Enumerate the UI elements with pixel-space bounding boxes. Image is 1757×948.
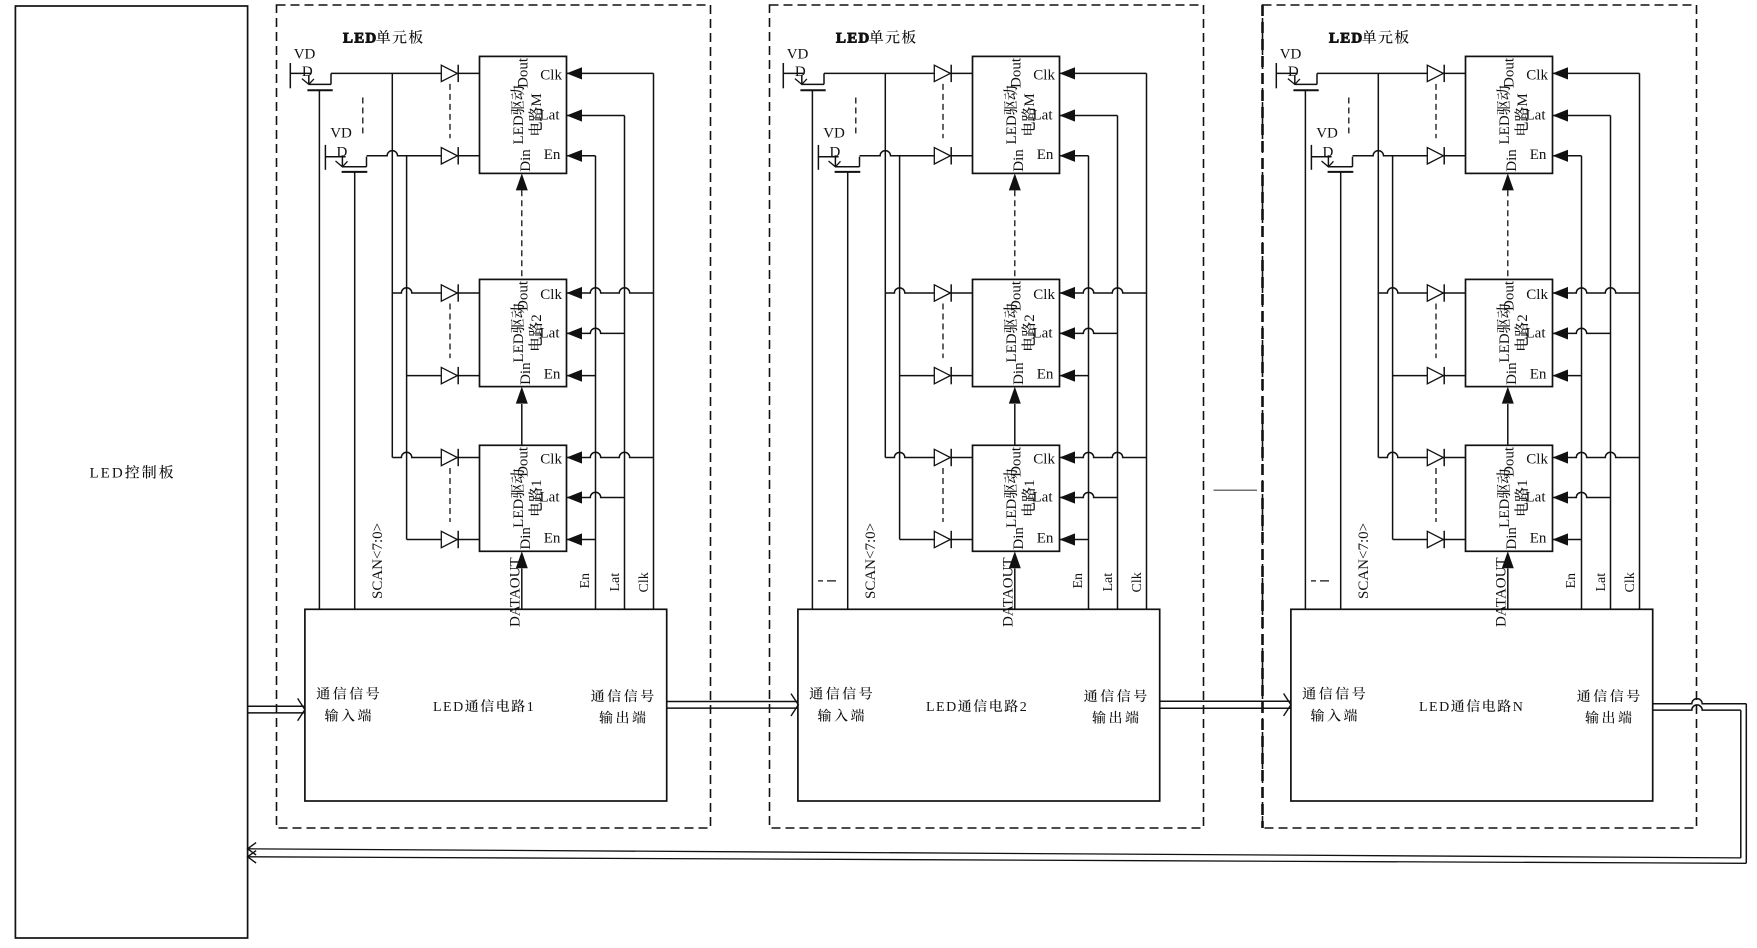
svg-text:Dout: Dout	[1502, 446, 1518, 477]
svg-text:LED: LED	[926, 700, 958, 715]
svg-text:LED: LED	[343, 31, 377, 47]
svg-text:En: En	[1564, 573, 1579, 589]
svg-text:LED: LED	[1004, 115, 1020, 144]
svg-text:Dout: Dout	[1009, 57, 1025, 88]
svg-text:2: 2	[529, 314, 545, 322]
svg-text:Clk: Clk	[1526, 452, 1548, 468]
svg-text:Din: Din	[1011, 149, 1027, 172]
svg-text:Clk: Clk	[1526, 67, 1548, 83]
svg-text:LED: LED	[1497, 333, 1513, 362]
svg-text:Lat: Lat	[1033, 325, 1054, 341]
svg-text:Clk: Clk	[540, 67, 562, 83]
svg-text:Lat: Lat	[1526, 490, 1547, 506]
svg-text:Din: Din	[518, 527, 534, 550]
svg-text:2: 2	[1022, 314, 1038, 322]
svg-text:Din: Din	[1011, 527, 1027, 550]
svg-text:LED: LED	[1497, 115, 1513, 144]
svg-text:LED: LED	[1004, 333, 1020, 362]
svg-text:VD: VD	[330, 126, 352, 142]
svg-text:LED: LED	[511, 499, 527, 528]
svg-text:LED: LED	[1419, 700, 1451, 715]
svg-text:Clk: Clk	[637, 572, 652, 592]
svg-text:Clk: Clk	[1623, 572, 1638, 592]
svg-text:LED: LED	[1497, 499, 1513, 528]
svg-text:DATAOUT: DATAOUT	[1494, 557, 1510, 627]
svg-text:Clk: Clk	[1033, 452, 1055, 468]
svg-text:SCAN<7:0>: SCAN<7:0>	[863, 523, 879, 599]
svg-text:Clk: Clk	[540, 452, 562, 468]
svg-text:D: D	[302, 64, 313, 80]
svg-text:LED: LED	[90, 466, 125, 482]
svg-text:Clk: Clk	[1526, 287, 1548, 303]
svg-text:Lat: Lat	[1033, 108, 1054, 124]
svg-text:En: En	[578, 573, 593, 589]
svg-text:1: 1	[529, 480, 545, 488]
svg-text:Clk: Clk	[1033, 67, 1055, 83]
svg-text:1: 1	[527, 700, 536, 715]
svg-text:M: M	[529, 93, 545, 106]
svg-text:Din: Din	[1011, 362, 1027, 385]
svg-text:LED: LED	[511, 115, 527, 144]
svg-text:Dout: Dout	[1502, 57, 1518, 88]
svg-text:En: En	[1037, 531, 1054, 547]
svg-text:En: En	[544, 531, 561, 547]
svg-text:DATAOUT: DATAOUT	[508, 557, 524, 627]
svg-text:M: M	[1022, 93, 1038, 106]
svg-text:VD: VD	[1316, 126, 1338, 142]
svg-text:SCAN<7:0>: SCAN<7:0>	[1356, 523, 1372, 599]
svg-text:LED: LED	[1004, 499, 1020, 528]
svg-text:Din: Din	[518, 149, 534, 172]
svg-text:Dout: Dout	[516, 57, 532, 88]
svg-text:Lat: Lat	[540, 108, 561, 124]
svg-text:Lat: Lat	[1033, 490, 1054, 506]
svg-text:En: En	[1071, 573, 1086, 589]
svg-text:1: 1	[1022, 480, 1038, 488]
svg-text:Din: Din	[518, 362, 534, 385]
svg-text:LED: LED	[836, 31, 870, 47]
svg-text:En: En	[1037, 147, 1054, 163]
svg-text:2: 2	[1020, 700, 1028, 715]
svg-text:Dout: Dout	[516, 446, 532, 477]
svg-text:LED: LED	[433, 700, 465, 715]
svg-text:VD: VD	[823, 126, 845, 142]
svg-text:Dout: Dout	[1502, 280, 1518, 311]
svg-text:En: En	[1530, 147, 1547, 163]
svg-text:Lat: Lat	[608, 573, 623, 592]
svg-text:En: En	[1530, 531, 1547, 547]
svg-text:LED: LED	[511, 333, 527, 362]
svg-text:Dout: Dout	[516, 280, 532, 311]
svg-text:Clk: Clk	[1130, 572, 1145, 592]
svg-text:Din: Din	[1504, 149, 1520, 172]
svg-text:Din: Din	[1504, 527, 1520, 550]
svg-text:D: D	[795, 64, 806, 80]
svg-text:En: En	[544, 147, 561, 163]
svg-text:Lat: Lat	[540, 325, 561, 341]
svg-text:SCAN<7:0>: SCAN<7:0>	[370, 523, 386, 599]
svg-text:VD: VD	[294, 47, 316, 63]
svg-text:Dout: Dout	[1009, 280, 1025, 311]
svg-text:En: En	[1530, 367, 1547, 383]
svg-text:Lat: Lat	[1101, 573, 1116, 592]
svg-text:Din: Din	[1504, 362, 1520, 385]
svg-text:En: En	[1037, 367, 1054, 383]
svg-text:Lat: Lat	[1526, 108, 1547, 124]
svg-text:Lat: Lat	[540, 490, 561, 506]
svg-text:Clk: Clk	[540, 287, 562, 303]
svg-text:Clk: Clk	[1033, 287, 1055, 303]
svg-text:Lat: Lat	[1594, 573, 1609, 592]
svg-text:LED: LED	[1329, 31, 1363, 47]
svg-text:M: M	[1515, 93, 1531, 106]
svg-text:DATAOUT: DATAOUT	[1001, 557, 1017, 627]
svg-text:D: D	[1288, 64, 1299, 80]
svg-text:2: 2	[1515, 314, 1531, 322]
svg-text:Lat: Lat	[1526, 325, 1547, 341]
svg-text:Dout: Dout	[1009, 446, 1025, 477]
svg-text:VD: VD	[787, 47, 809, 63]
svg-text:VD: VD	[1280, 47, 1302, 63]
svg-text:N: N	[1513, 700, 1525, 715]
svg-text:En: En	[544, 367, 561, 383]
svg-text:1: 1	[1515, 480, 1531, 488]
